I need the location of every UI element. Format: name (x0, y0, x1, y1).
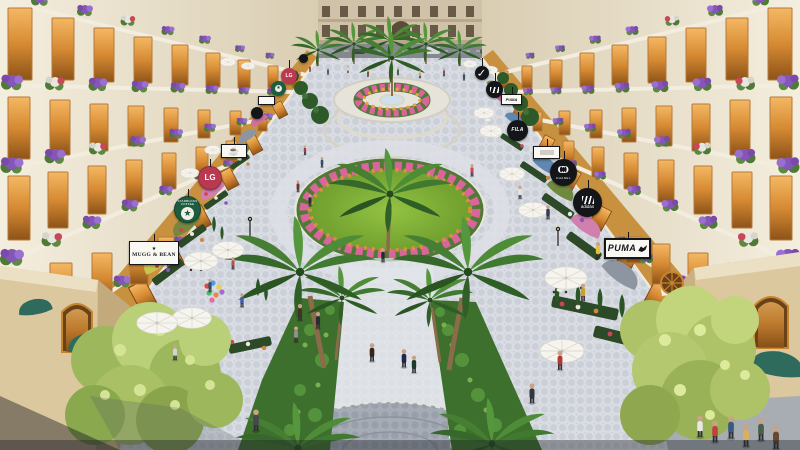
illegible-logo (540, 150, 554, 155)
puma-label: PUMA (608, 244, 637, 253)
shop-sign-blank (258, 96, 275, 105)
mugg-and-bean-sign: ★ MUGG & BEAN (129, 241, 179, 265)
fila-sign: FILA (507, 120, 528, 141)
shop-sign-generic (251, 107, 263, 119)
puma-cat-icon (638, 245, 647, 252)
starbucks-sign-far: ★ (271, 81, 286, 96)
scene-illustration (0, 0, 800, 450)
starbucks-siren-icon: ★ (275, 85, 282, 92)
shop-sign-generic (299, 54, 308, 63)
chanel-sign: CC CHANEL (550, 159, 577, 186)
shopping-promenade-render: LG ★ LG STARBUCKS COFFEE ★ ☕ ★ MUGG & BE… (0, 0, 800, 450)
lg-sign: LG (198, 166, 222, 190)
puma-sign-far: PUMA (501, 94, 522, 105)
chanel-interlocked-c-icon: CC (557, 165, 571, 176)
adidas-sign: adidas (573, 188, 602, 217)
adidas-stripes-icon (490, 87, 499, 93)
puma-sign: PUMA (604, 238, 651, 259)
lg-logo: LG (286, 74, 293, 79)
fila-label: FILA (511, 128, 523, 133)
mugg-and-bean-label: MUGG & BEAN (132, 253, 176, 259)
lg-logo: LG (204, 174, 215, 182)
puma-label: PUMA (506, 98, 518, 102)
nike-sign: ✓ (475, 66, 489, 80)
starbucks-ring-text: STARBUCKS COFFEE (175, 200, 200, 206)
lg-sign-far: LG (281, 68, 297, 84)
chanel-label: CHANEL (556, 177, 571, 180)
cafe-sign: ☕ (221, 144, 247, 158)
starbucks-siren-icon: ★ (181, 207, 194, 220)
adidas-stripes-icon (582, 196, 594, 204)
coffee-cup-icon: ☕ (228, 147, 239, 156)
shop-sign-blank (533, 146, 560, 159)
starbucks-sign: STARBUCKS COFFEE ★ (174, 196, 201, 223)
nike-swoosh-icon: ✓ (476, 67, 489, 78)
adidas-label: adidas (581, 205, 594, 210)
